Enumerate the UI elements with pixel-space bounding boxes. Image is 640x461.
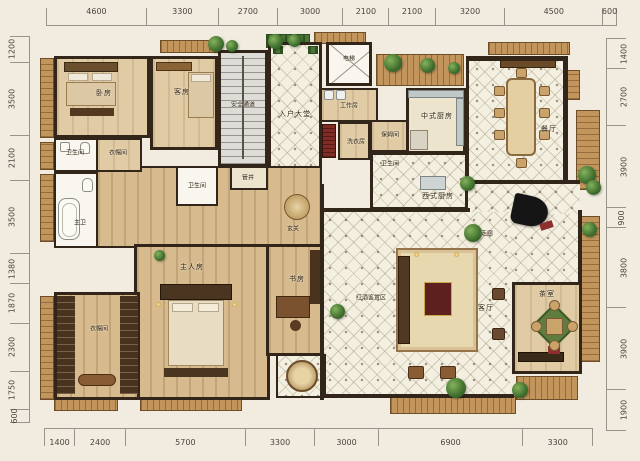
dimension-segment: 600: [10, 409, 30, 422]
dimension-value: 3000: [300, 7, 320, 16]
dimension-segment: 2100: [388, 8, 434, 26]
ottoman: [440, 366, 456, 379]
dimension-segment: 2700: [218, 8, 277, 26]
dimension-segment: 3000: [277, 8, 342, 26]
label-laundry: 洗衣房: [347, 137, 365, 146]
wardrobe: [120, 296, 138, 394]
plant: [448, 62, 460, 74]
dimension-value: 6900: [440, 438, 460, 447]
dimension-segment: 1200: [10, 36, 30, 62]
label-dining-room: 餐厅: [541, 124, 557, 134]
dimension-segment: 2100: [342, 8, 388, 26]
label-work-room: 工作房: [340, 101, 358, 110]
dimension-value: 1870: [7, 293, 16, 313]
dimension-value: 2100: [7, 148, 16, 168]
dimension-segment: 3900: [606, 125, 626, 207]
dimension-value: 900: [617, 210, 626, 225]
toilet: [82, 178, 93, 192]
plant: [268, 34, 283, 49]
dimension-segment: 1400: [606, 38, 626, 68]
balcony-west-4: [40, 296, 54, 400]
dimension-value: 2300: [7, 337, 16, 357]
chaise-lounge: [78, 374, 116, 386]
tea-stool: [549, 340, 560, 351]
label-guest-room: 客房: [174, 87, 190, 97]
dimension-value: 600: [602, 7, 617, 16]
bed-bench: [70, 108, 114, 116]
label-bath-mid: 卫生间: [188, 181, 206, 190]
study-chair: [290, 320, 301, 331]
wall-segment: [578, 210, 582, 284]
dining-chair: [494, 130, 505, 140]
dimension-value: 4600: [86, 7, 106, 16]
dining-chair: [516, 68, 527, 78]
guest-bed-pillow: [191, 74, 211, 82]
dimension-segment: 3300: [522, 428, 592, 446]
dimension-value: 3300: [270, 438, 290, 447]
label-foyer: 玄关: [287, 224, 299, 233]
dimension-value: 1900: [620, 400, 629, 420]
floor-plan-canvas: 46003300270030002100210032004500600 1400…: [0, 0, 640, 461]
candle-stand: [454, 252, 459, 257]
dimension-value: 5700: [175, 438, 195, 447]
dining-chair: [516, 158, 527, 168]
dimension-value: 2100: [402, 7, 422, 16]
dining-chair: [539, 86, 550, 96]
master-bed-footboard: [164, 368, 228, 377]
planter-top-right: [488, 42, 570, 55]
bed-headboard: [64, 62, 118, 72]
bedside-lamp: [232, 302, 237, 307]
plant: [582, 222, 597, 237]
label-bedroom: 卧房: [96, 88, 112, 98]
master-bed-pillow: [198, 303, 219, 312]
ottoman: [408, 366, 424, 379]
dimension-segment: 3200: [435, 8, 505, 26]
wine-rack-cabinet: [322, 124, 336, 158]
dimension-value: 600: [10, 408, 19, 423]
wardrobe: [57, 296, 75, 394]
room-elevator: [326, 42, 372, 86]
dimension-ruler-bottom: 1400240057003300300069003300: [44, 428, 593, 446]
dimension-value: 1380: [7, 258, 16, 278]
tea-stool: [567, 321, 578, 332]
dimension-value: 3000: [336, 438, 356, 447]
dimension-segment: 1900: [606, 389, 626, 430]
guest-desk: [156, 62, 192, 71]
dining-chair: [494, 108, 505, 118]
candle-stand: [414, 252, 419, 257]
dimension-value: 3200: [460, 7, 480, 16]
dimension-ruler-left: 12003500210035001380187023001750600: [10, 36, 30, 423]
dimension-value: 3900: [620, 339, 629, 359]
dimension-value: 3500: [7, 207, 16, 227]
kitchen-counter: [456, 98, 464, 146]
dimension-segment: 4600: [46, 8, 146, 26]
label-bath-top: 卫生间: [66, 148, 84, 157]
dimension-value: 2400: [90, 438, 110, 447]
plant: [154, 250, 165, 261]
dimension-value: 1400: [49, 438, 69, 447]
vestibule-round-rug: [286, 360, 318, 392]
dimension-ruler-top: 46003300270030002100210032004500600: [46, 8, 617, 26]
dimension-value: 3300: [547, 438, 567, 447]
foyer-round-rug: [284, 194, 310, 220]
armchair: [492, 288, 505, 300]
dining-chair: [539, 108, 550, 118]
wall-segment: [322, 394, 514, 398]
plant: [460, 176, 475, 191]
label-nanny-room: 保姆间: [381, 130, 399, 139]
wine-center-table: [424, 282, 452, 316]
balcony-west-2: [40, 142, 54, 170]
plant: [288, 34, 301, 47]
label-master-closet: 衣帽间: [90, 324, 108, 333]
dimension-value: 3900: [620, 157, 629, 177]
dimension-segment: 3900: [606, 307, 626, 389]
kitchen-counter: [408, 90, 464, 98]
dimension-value: 2100: [356, 7, 376, 16]
washer-icon: [324, 90, 334, 100]
dimension-value: 3300: [172, 7, 192, 16]
dimension-segment: 1870: [10, 283, 30, 323]
dimension-segment: 1750: [10, 371, 30, 408]
dimension-segment: 2100: [10, 135, 30, 180]
plant: [464, 224, 482, 242]
dining-chair: [494, 86, 505, 96]
dimension-value: 4500: [544, 7, 564, 16]
dimension-segment: 2400: [74, 428, 125, 446]
plant: [226, 40, 238, 52]
label-bath-service: 卫生间: [381, 159, 399, 168]
dimension-value: 3800: [620, 258, 629, 278]
plant: [512, 382, 528, 398]
balcony-west-1: [40, 58, 54, 138]
balcony-west-3: [40, 174, 54, 242]
dimension-segment: 1400: [44, 428, 74, 446]
label-elevator: 电梯: [343, 54, 355, 63]
dimension-segment: 1380: [10, 253, 30, 283]
dimension-ruler-right: 140027003900900380039001900: [606, 38, 626, 431]
dimension-segment: 4500: [504, 8, 602, 26]
bedside-lamp: [156, 302, 161, 307]
label-pipe-shaft: 管井: [242, 173, 254, 182]
bookshelf: [310, 250, 320, 304]
label-master-bath: 主卫: [74, 218, 86, 227]
hall-planter: [308, 46, 318, 54]
label-corridor: 走廊: [481, 229, 493, 238]
dimension-segment: 6900: [378, 428, 523, 446]
study-desk: [276, 296, 310, 318]
dining-table: [506, 78, 536, 156]
dimension-segment: 5700: [125, 428, 245, 446]
label-wine-area: 红酒鉴赏区: [356, 293, 386, 302]
dimension-value: 3500: [7, 89, 16, 109]
label-living-room: 客厅: [478, 303, 494, 313]
dimension-segment: 3500: [10, 62, 30, 136]
wall-segment: [564, 56, 568, 184]
label-chinese-kitchen: 中式厨房: [421, 111, 453, 121]
master-bed-headboard: [160, 284, 232, 300]
dimension-value: 1750: [7, 380, 16, 400]
tea-stool: [549, 300, 560, 311]
dimension-segment: 2700: [606, 68, 626, 125]
plant: [586, 180, 601, 195]
plant: [446, 378, 466, 398]
bed-pillow: [68, 73, 88, 81]
dimension-segment: 3000: [314, 428, 377, 446]
dimension-segment: 3300: [245, 428, 315, 446]
kitchen-island: [410, 130, 428, 150]
dimension-value: 1400: [620, 43, 629, 63]
label-entrance-hall: 入户大堂: [279, 109, 311, 119]
plant: [208, 36, 224, 52]
dimension-value: 2700: [238, 7, 258, 16]
label-master-bedroom: 主人房: [180, 262, 204, 272]
dimension-segment: 3500: [10, 180, 30, 254]
dimension-segment: 600: [602, 8, 616, 26]
plant: [330, 304, 345, 319]
label-study: 书房: [289, 274, 305, 284]
label-western-kitchen: 西式厨房: [422, 191, 454, 201]
dimension-segment: 3300: [146, 8, 218, 26]
dimension-value: 2700: [620, 87, 629, 107]
wall-segment: [320, 244, 324, 400]
dining-sideboard: [500, 60, 556, 68]
tea-stool: [531, 321, 542, 332]
washer-icon: [336, 90, 346, 100]
bed-pillow: [92, 73, 112, 81]
plant: [384, 54, 402, 72]
tea-table: [546, 318, 563, 335]
master-bed-pillow: [172, 303, 193, 312]
wall-segment: [322, 208, 470, 212]
dimension-value: 1200: [7, 39, 16, 59]
deck-bottom-4: [390, 396, 516, 414]
balcony-east-3: [580, 216, 600, 362]
armchair: [492, 328, 505, 340]
dimension-segment: 2300: [10, 323, 30, 372]
wall-segment: [466, 180, 580, 184]
kitchen-island: [420, 176, 446, 190]
plant: [420, 58, 435, 73]
dimension-segment: 3800: [606, 227, 626, 307]
sofa: [398, 256, 410, 344]
dimension-segment: 900: [606, 207, 626, 227]
label-tea-room: 茶室: [539, 289, 555, 299]
label-closet-top: 衣帽间: [109, 148, 127, 157]
label-safety-passage: 安全通道: [231, 100, 255, 109]
